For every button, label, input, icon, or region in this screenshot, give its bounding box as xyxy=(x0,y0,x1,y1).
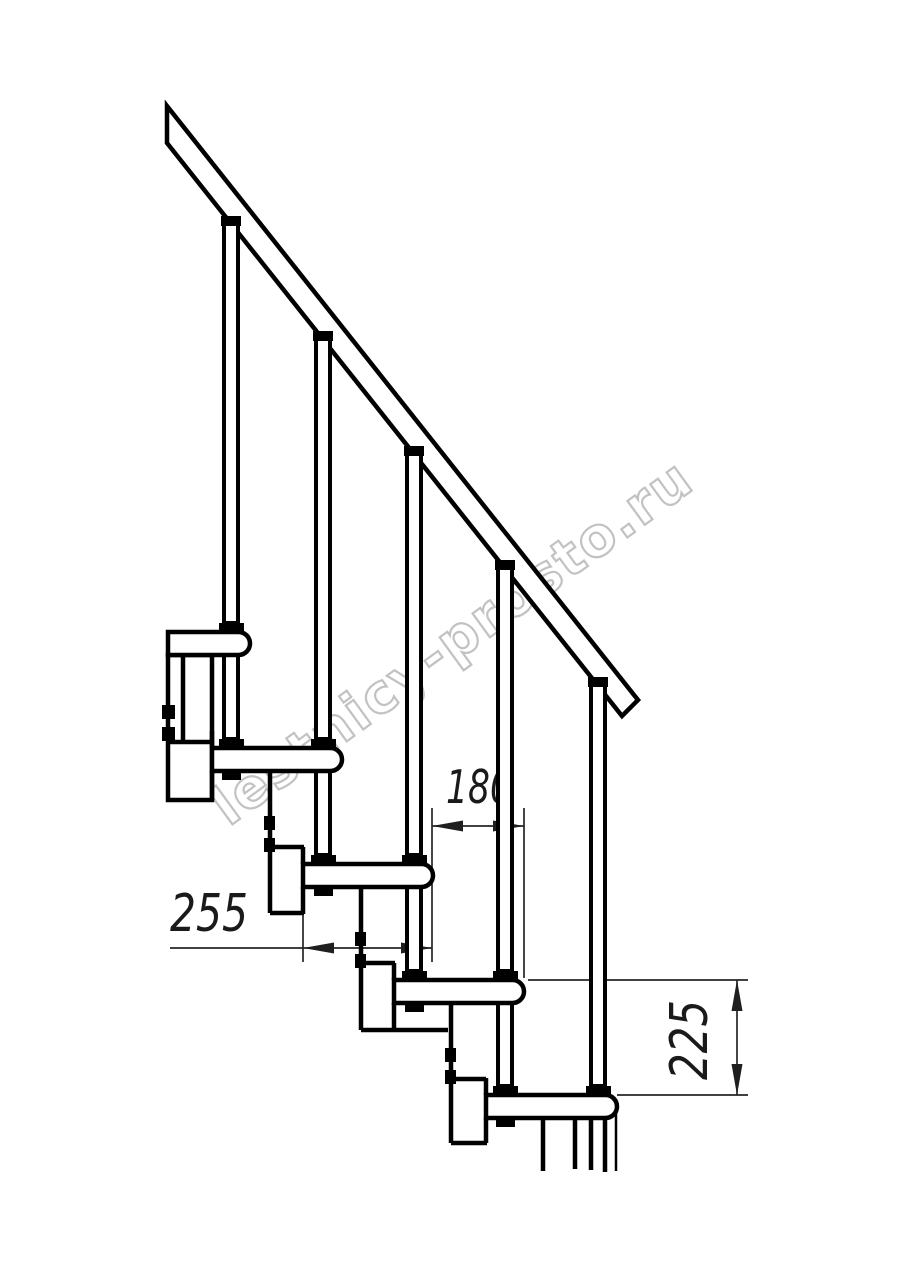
staircase-technical-drawing: 180 255 225 xyxy=(0,0,914,1280)
baluster-tube xyxy=(316,339,330,739)
baluster-3 xyxy=(402,446,427,864)
fastener-clip xyxy=(162,705,175,719)
support-post xyxy=(498,1003,512,1086)
baluster-tube xyxy=(407,454,421,855)
support-post xyxy=(316,771,330,855)
baluster-4 xyxy=(493,560,518,980)
fastener-clip xyxy=(355,954,366,968)
clamp-plate xyxy=(314,887,333,896)
baluster-tube xyxy=(224,224,238,623)
arrow-up-icon xyxy=(732,980,743,1011)
clamp-plate xyxy=(405,1003,424,1012)
baluster-tube xyxy=(498,568,512,971)
fastener-clip xyxy=(264,816,275,830)
tread xyxy=(168,632,250,655)
fastener-clip xyxy=(445,1070,456,1084)
baluster-tube xyxy=(591,685,605,1086)
tread xyxy=(303,864,433,887)
tread xyxy=(486,1095,617,1118)
drawing-canvas: lestnicy-prosto.ru 180 255 225 xyxy=(0,0,914,1280)
baluster-foot-pad xyxy=(493,971,518,980)
support-post xyxy=(407,887,421,971)
clamp-plate xyxy=(222,771,241,780)
support-post xyxy=(224,655,238,739)
baluster-foot-pad xyxy=(402,855,427,864)
tread xyxy=(394,980,524,1003)
dimension-step-rise: 225 xyxy=(528,980,748,1095)
fastener-clip xyxy=(355,932,366,946)
fastener-clip xyxy=(445,1048,456,1062)
baluster-foot-pad xyxy=(311,739,336,748)
baluster-foot-pad xyxy=(586,1086,611,1095)
tread xyxy=(212,748,342,771)
dimension-label-225: 225 xyxy=(660,1000,720,1080)
arrow-down-icon xyxy=(732,1064,743,1095)
baluster-2 xyxy=(311,331,336,748)
arrow-left-icon xyxy=(432,821,463,832)
clamp-plate xyxy=(496,1118,515,1127)
fastener-clip xyxy=(264,838,275,852)
fastener-clip xyxy=(162,727,175,741)
baluster-foot-pad xyxy=(219,623,244,632)
arrow-left-icon xyxy=(303,943,334,954)
dimension-label-255: 255 xyxy=(170,884,248,944)
baluster-5 xyxy=(586,677,611,1095)
baluster-1 xyxy=(219,216,244,632)
